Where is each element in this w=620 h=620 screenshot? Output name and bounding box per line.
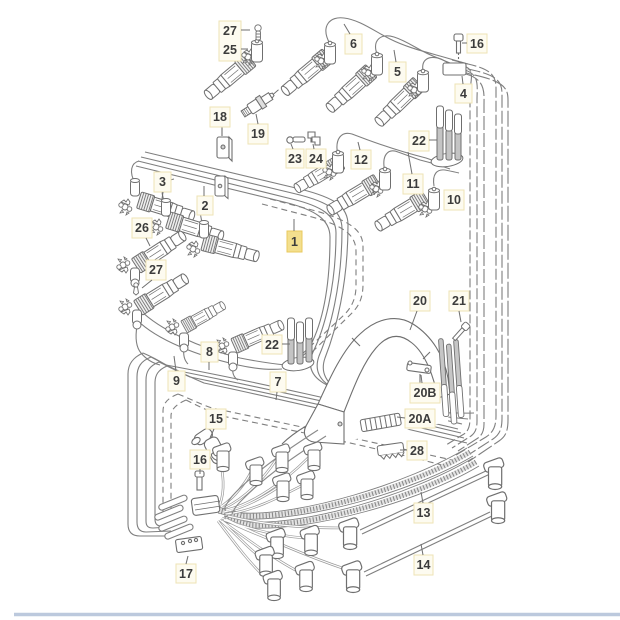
svg-text:14: 14 [417, 558, 431, 572]
svg-text:21: 21 [452, 294, 466, 308]
svg-text:11: 11 [406, 177, 419, 191]
svg-text:15: 15 [209, 412, 223, 426]
svg-text:17: 17 [179, 567, 193, 581]
svg-text:26: 26 [135, 221, 149, 235]
svg-text:20: 20 [413, 294, 427, 308]
svg-text:8: 8 [206, 345, 213, 359]
svg-text:1: 1 [291, 235, 298, 249]
svg-text:12: 12 [354, 153, 368, 167]
svg-text:3: 3 [159, 175, 166, 189]
svg-text:24: 24 [309, 152, 323, 166]
svg-text:22: 22 [265, 338, 279, 352]
svg-text:25: 25 [223, 43, 237, 57]
svg-text:23: 23 [288, 152, 302, 166]
svg-text:20B: 20B [414, 386, 437, 400]
svg-text:7: 7 [275, 375, 282, 389]
svg-text:20A: 20A [409, 412, 432, 426]
svg-text:13: 13 [417, 506, 431, 520]
svg-text:27: 27 [149, 263, 163, 277]
svg-text:6: 6 [350, 37, 357, 51]
svg-text:28: 28 [410, 444, 424, 458]
svg-text:16: 16 [193, 453, 207, 467]
svg-text:9: 9 [173, 374, 180, 388]
svg-text:16: 16 [470, 37, 484, 51]
svg-text:2: 2 [202, 199, 209, 213]
svg-text:18: 18 [213, 110, 227, 124]
svg-text:27: 27 [223, 24, 237, 38]
svg-text:10: 10 [447, 193, 461, 207]
svg-text:4: 4 [460, 87, 467, 101]
svg-text:19: 19 [251, 127, 265, 141]
svg-text:5: 5 [394, 65, 401, 79]
svg-text:22: 22 [412, 134, 426, 148]
